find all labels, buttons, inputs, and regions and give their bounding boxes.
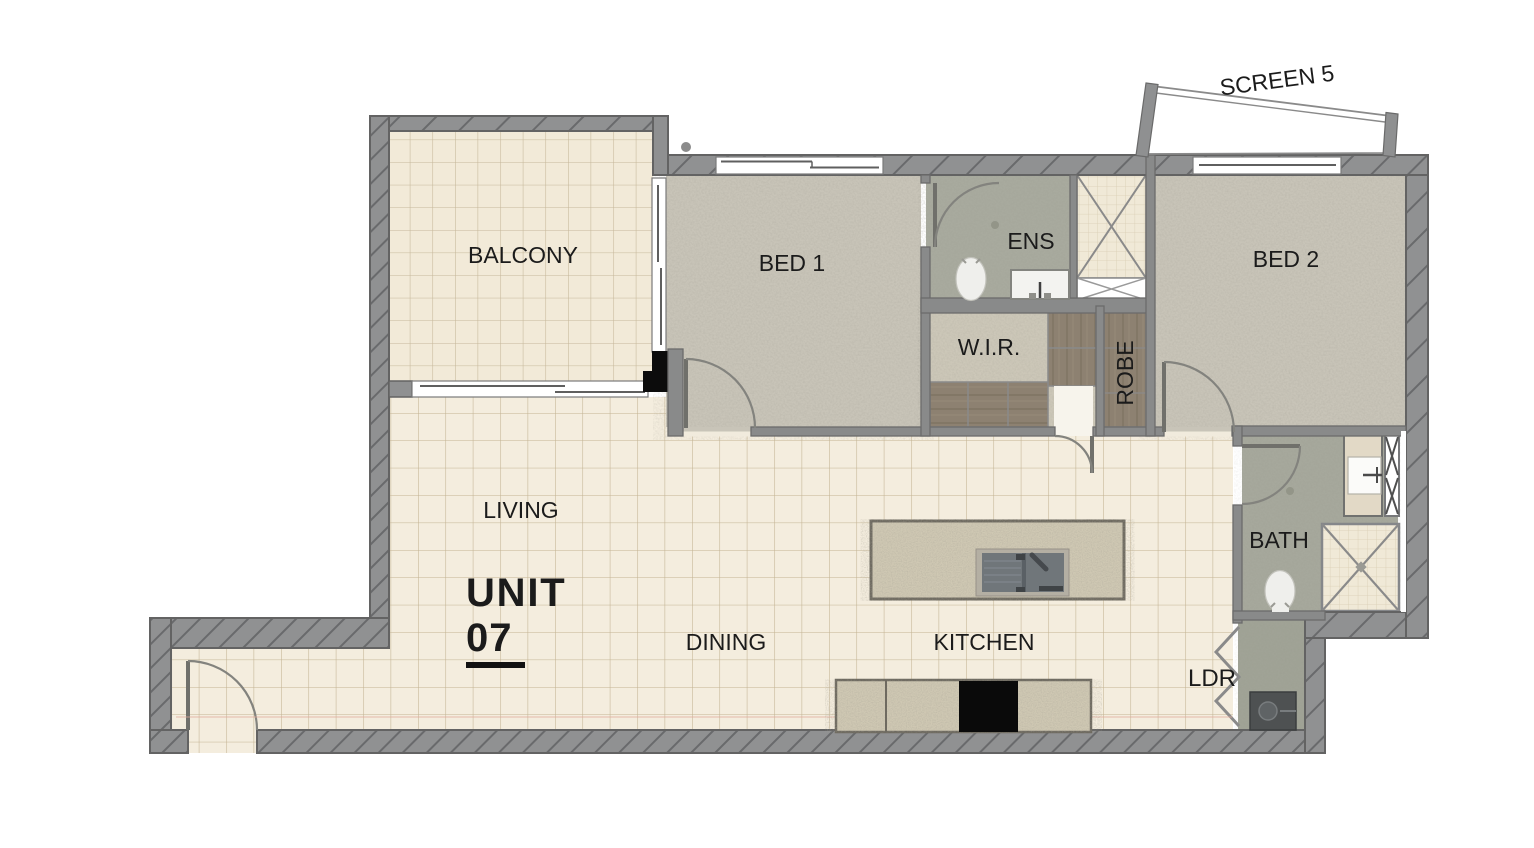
svg-text:DINING: DINING — [686, 629, 767, 655]
svg-text:UNIT: UNIT — [466, 571, 567, 615]
svg-text:BED 1: BED 1 — [759, 250, 825, 276]
svg-text:SCREEN 5: SCREEN 5 — [1218, 60, 1335, 101]
svg-text:W.I.R.: W.I.R. — [958, 334, 1021, 360]
svg-text:KITCHEN: KITCHEN — [934, 629, 1035, 655]
svg-text:07: 07 — [466, 616, 513, 660]
svg-text:BALCONY: BALCONY — [468, 242, 578, 268]
svg-text:LIVING: LIVING — [483, 497, 558, 523]
svg-text:LDR: LDR — [1188, 665, 1236, 692]
svg-text:ENS: ENS — [1007, 228, 1054, 254]
svg-text:BED 2: BED 2 — [1253, 246, 1319, 272]
svg-text:ROBE: ROBE — [1112, 340, 1138, 405]
svg-text:BATH: BATH — [1249, 527, 1309, 553]
